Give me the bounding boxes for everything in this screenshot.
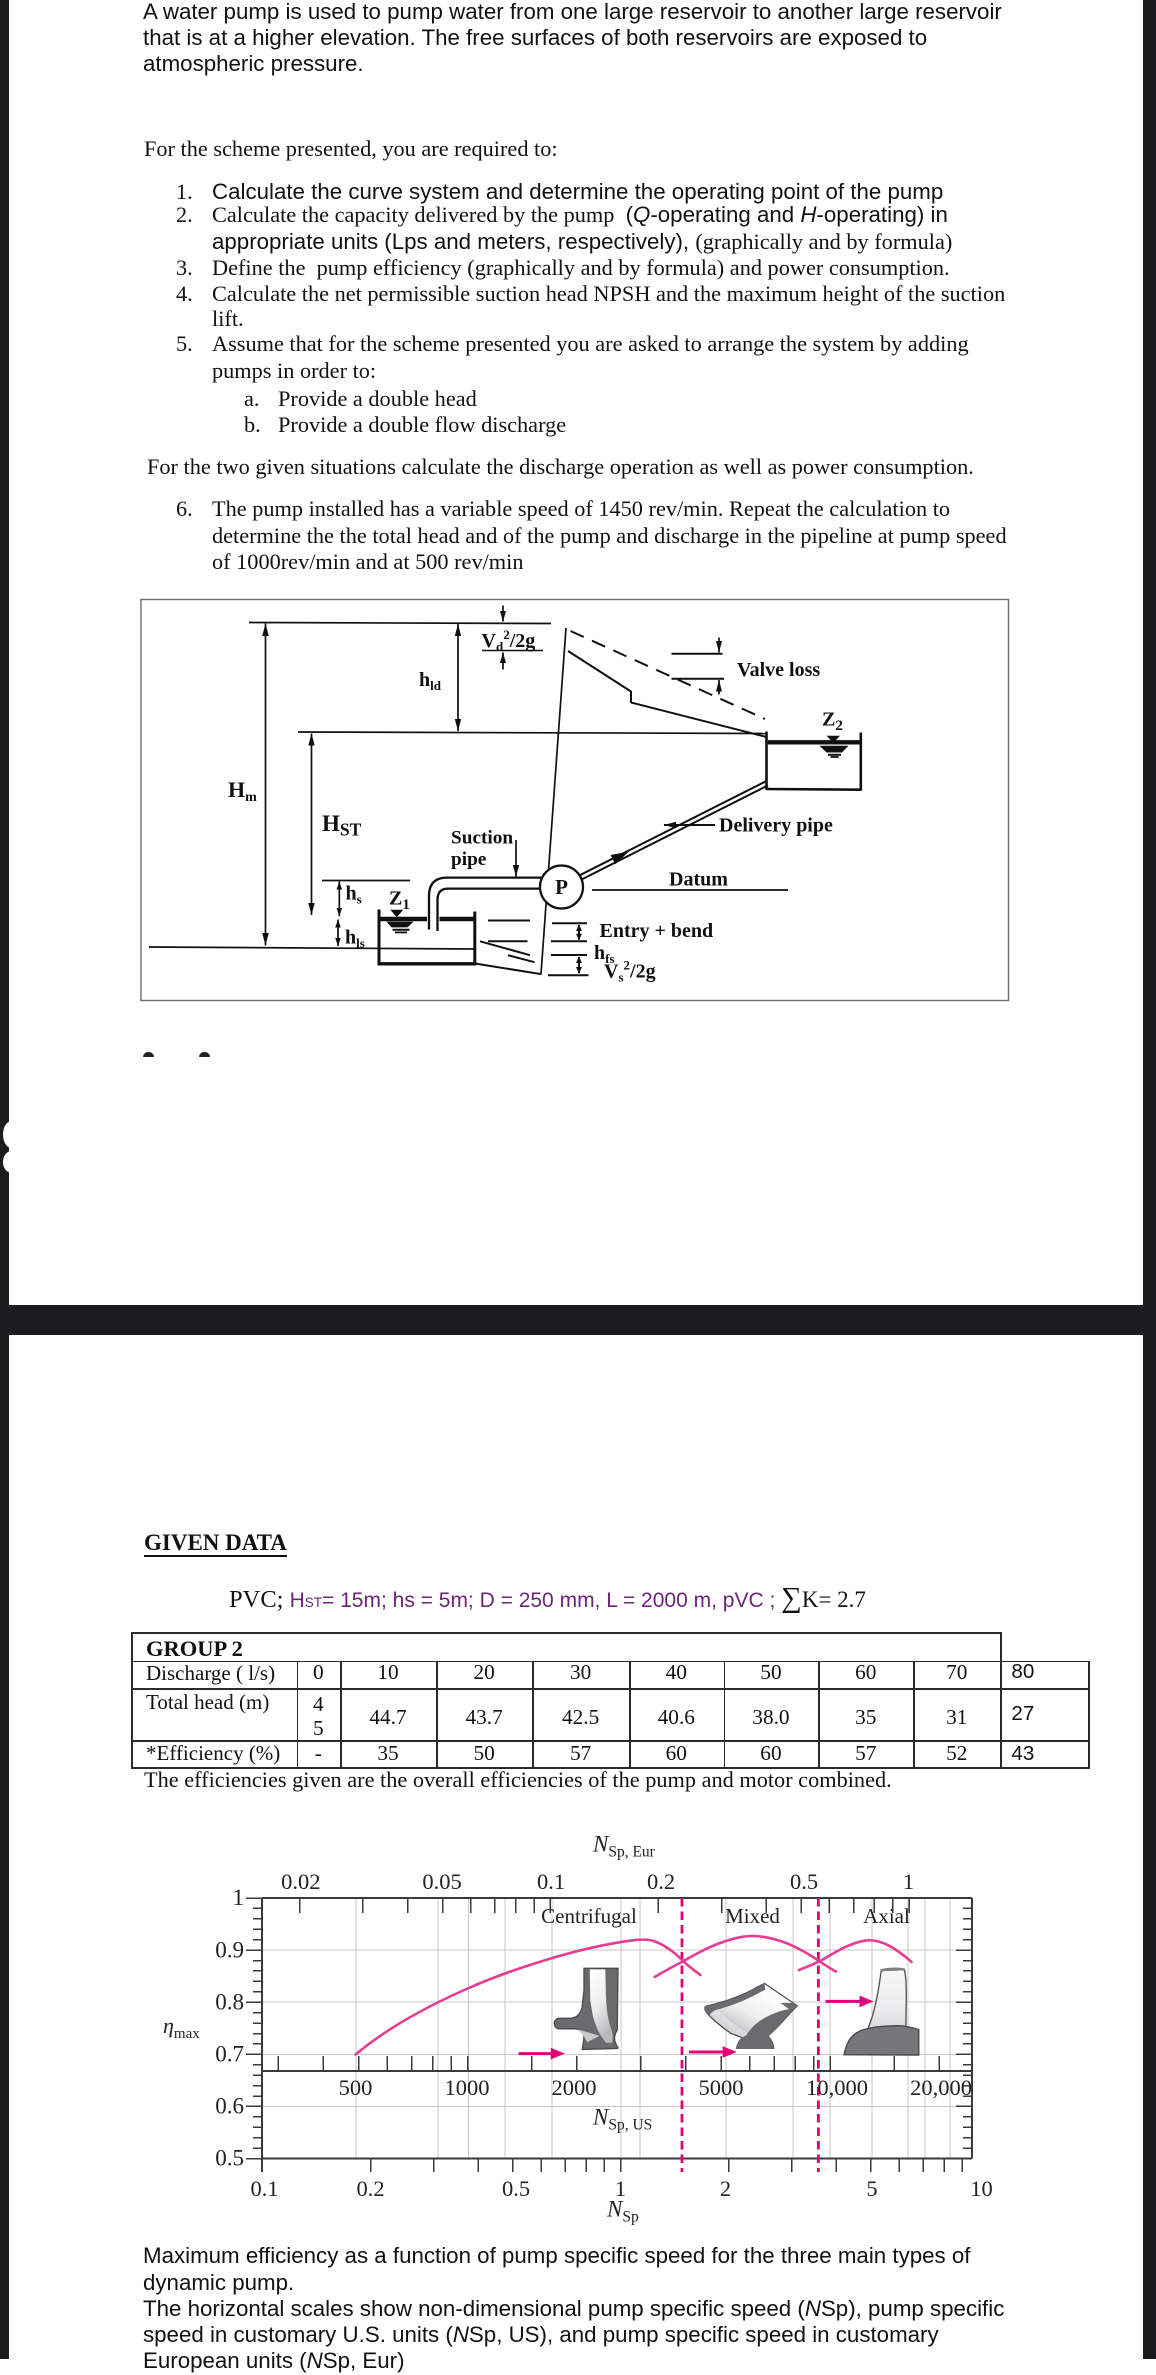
svg-text:0.2: 0.2	[356, 2176, 384, 2201]
svg-text:NSp, US: NSp, US	[592, 2105, 652, 2134]
svg-text:1: 1	[903, 1869, 914, 1894]
svg-text:10: 10	[970, 2176, 993, 2201]
svg-text:ηmax: ηmax	[163, 2013, 200, 2042]
svg-text:500: 500	[339, 2075, 373, 2100]
svg-text:20,000: 20,000	[910, 2075, 972, 2100]
svg-text:1000: 1000	[445, 2075, 490, 2100]
svg-text:0.6: 0.6	[215, 2094, 244, 2119]
svg-text:5: 5	[866, 2176, 877, 2201]
svg-text:0.05: 0.05	[422, 1869, 461, 1894]
svg-text:Centrifugal: Centrifugal	[541, 1904, 637, 1928]
svg-text:0.5: 0.5	[215, 2146, 244, 2171]
svg-text:0.8: 0.8	[215, 1989, 244, 2014]
svg-text:0.7: 0.7	[215, 2042, 244, 2067]
svg-text:NSp, Eur: NSp, Eur	[592, 1832, 656, 1861]
svg-text:0.1: 0.1	[537, 1869, 565, 1894]
svg-text:0.5: 0.5	[790, 1869, 818, 1894]
svg-text:0.9: 0.9	[215, 1937, 244, 1962]
svg-text:2000: 2000	[552, 2075, 597, 2100]
svg-text:1: 1	[615, 2176, 626, 2201]
svg-text:0.2: 0.2	[647, 1869, 675, 1894]
svg-text:2: 2	[720, 2176, 731, 2201]
svg-text:Axial: Axial	[863, 1904, 910, 1928]
svg-text:0.02: 0.02	[281, 1869, 320, 1894]
svg-text:10,000: 10,000	[806, 2075, 868, 2100]
svg-text:Mixed: Mixed	[725, 1904, 780, 1928]
svg-text:5000: 5000	[699, 2075, 744, 2100]
svg-text:1: 1	[233, 1885, 245, 1910]
svg-text:0.5: 0.5	[502, 2176, 530, 2201]
svg-text:0.1: 0.1	[250, 2176, 278, 2201]
